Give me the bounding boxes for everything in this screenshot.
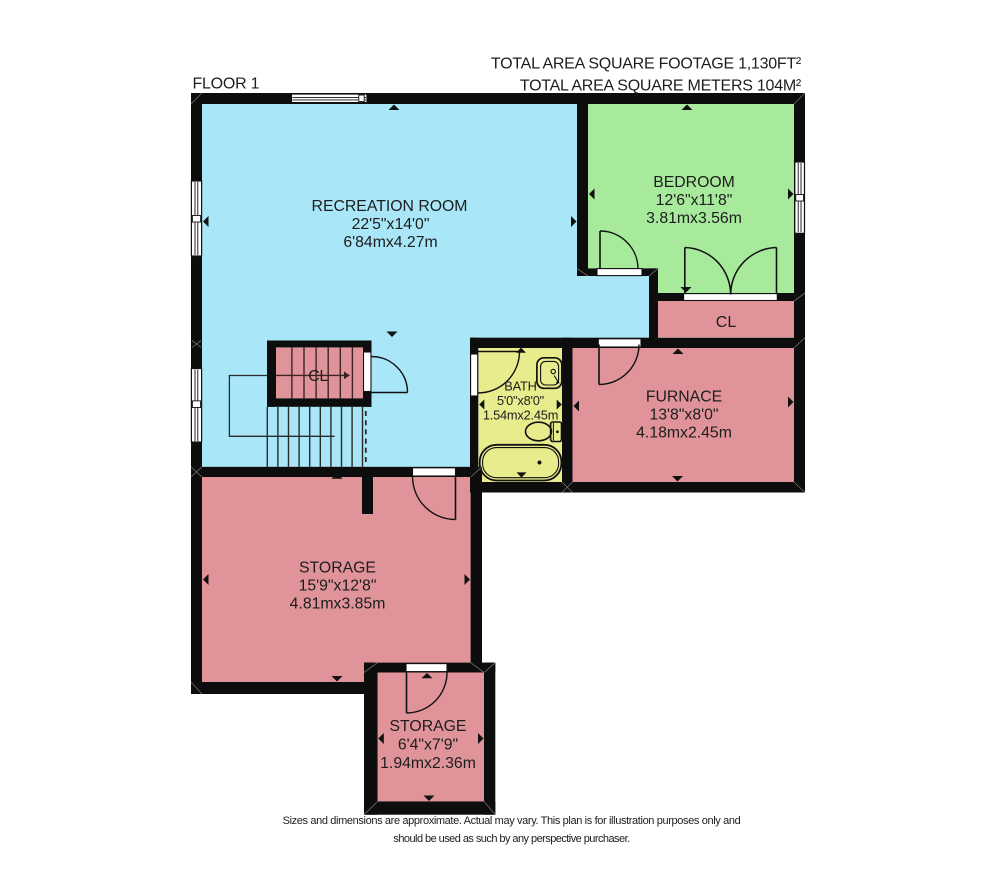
svg-text:FLOOR 1: FLOOR 1 [193,75,260,92]
svg-text:BATH: BATH [504,379,536,394]
svg-text:6'4"x7'9": 6'4"x7'9" [398,737,458,754]
svg-text:22'5"x14'0": 22'5"x14'0" [352,216,430,233]
svg-text:CL: CL [716,314,737,331]
svg-text:FURNACE: FURNACE [646,389,722,406]
svg-text:1.94mx2.36m: 1.94mx2.36m [380,755,476,772]
svg-text:15'9"x12'8": 15'9"x12'8" [299,578,377,595]
svg-text:5'0"x8'0": 5'0"x8'0" [497,393,544,408]
svg-text:TOTAL AREA SQUARE FOOTAGE 1,13: TOTAL AREA SQUARE FOOTAGE 1,130FT² [491,55,802,72]
svg-text:CL: CL [308,368,328,385]
svg-text:4.18mx2.45m: 4.18mx2.45m [636,425,732,442]
svg-text:13'8"x8'0": 13'8"x8'0" [649,407,718,424]
svg-text:1.54mx2.45m: 1.54mx2.45m [483,408,558,423]
svg-text:3.81mx3.56m: 3.81mx3.56m [646,210,742,227]
svg-text:RECREATION ROOM: RECREATION ROOM [312,198,468,215]
svg-text:4.81mx3.85m: 4.81mx3.85m [290,596,386,613]
svg-text:6'84mx4.27m: 6'84mx4.27m [343,234,437,251]
svg-text:BEDROOM: BEDROOM [653,174,735,191]
svg-text:should be used as such by any: should be used as such by any perspectiv… [393,833,630,845]
svg-text:STORAGE: STORAGE [299,560,376,577]
svg-text:Sizes and dimensions are appro: Sizes and dimensions are approximate. Ac… [283,815,741,827]
svg-text:STORAGE: STORAGE [390,718,467,735]
svg-text:12'6"x11'8": 12'6"x11'8" [656,192,733,209]
svg-text:TOTAL AREA SQUARE METERS 104M²: TOTAL AREA SQUARE METERS 104M² [520,78,802,95]
